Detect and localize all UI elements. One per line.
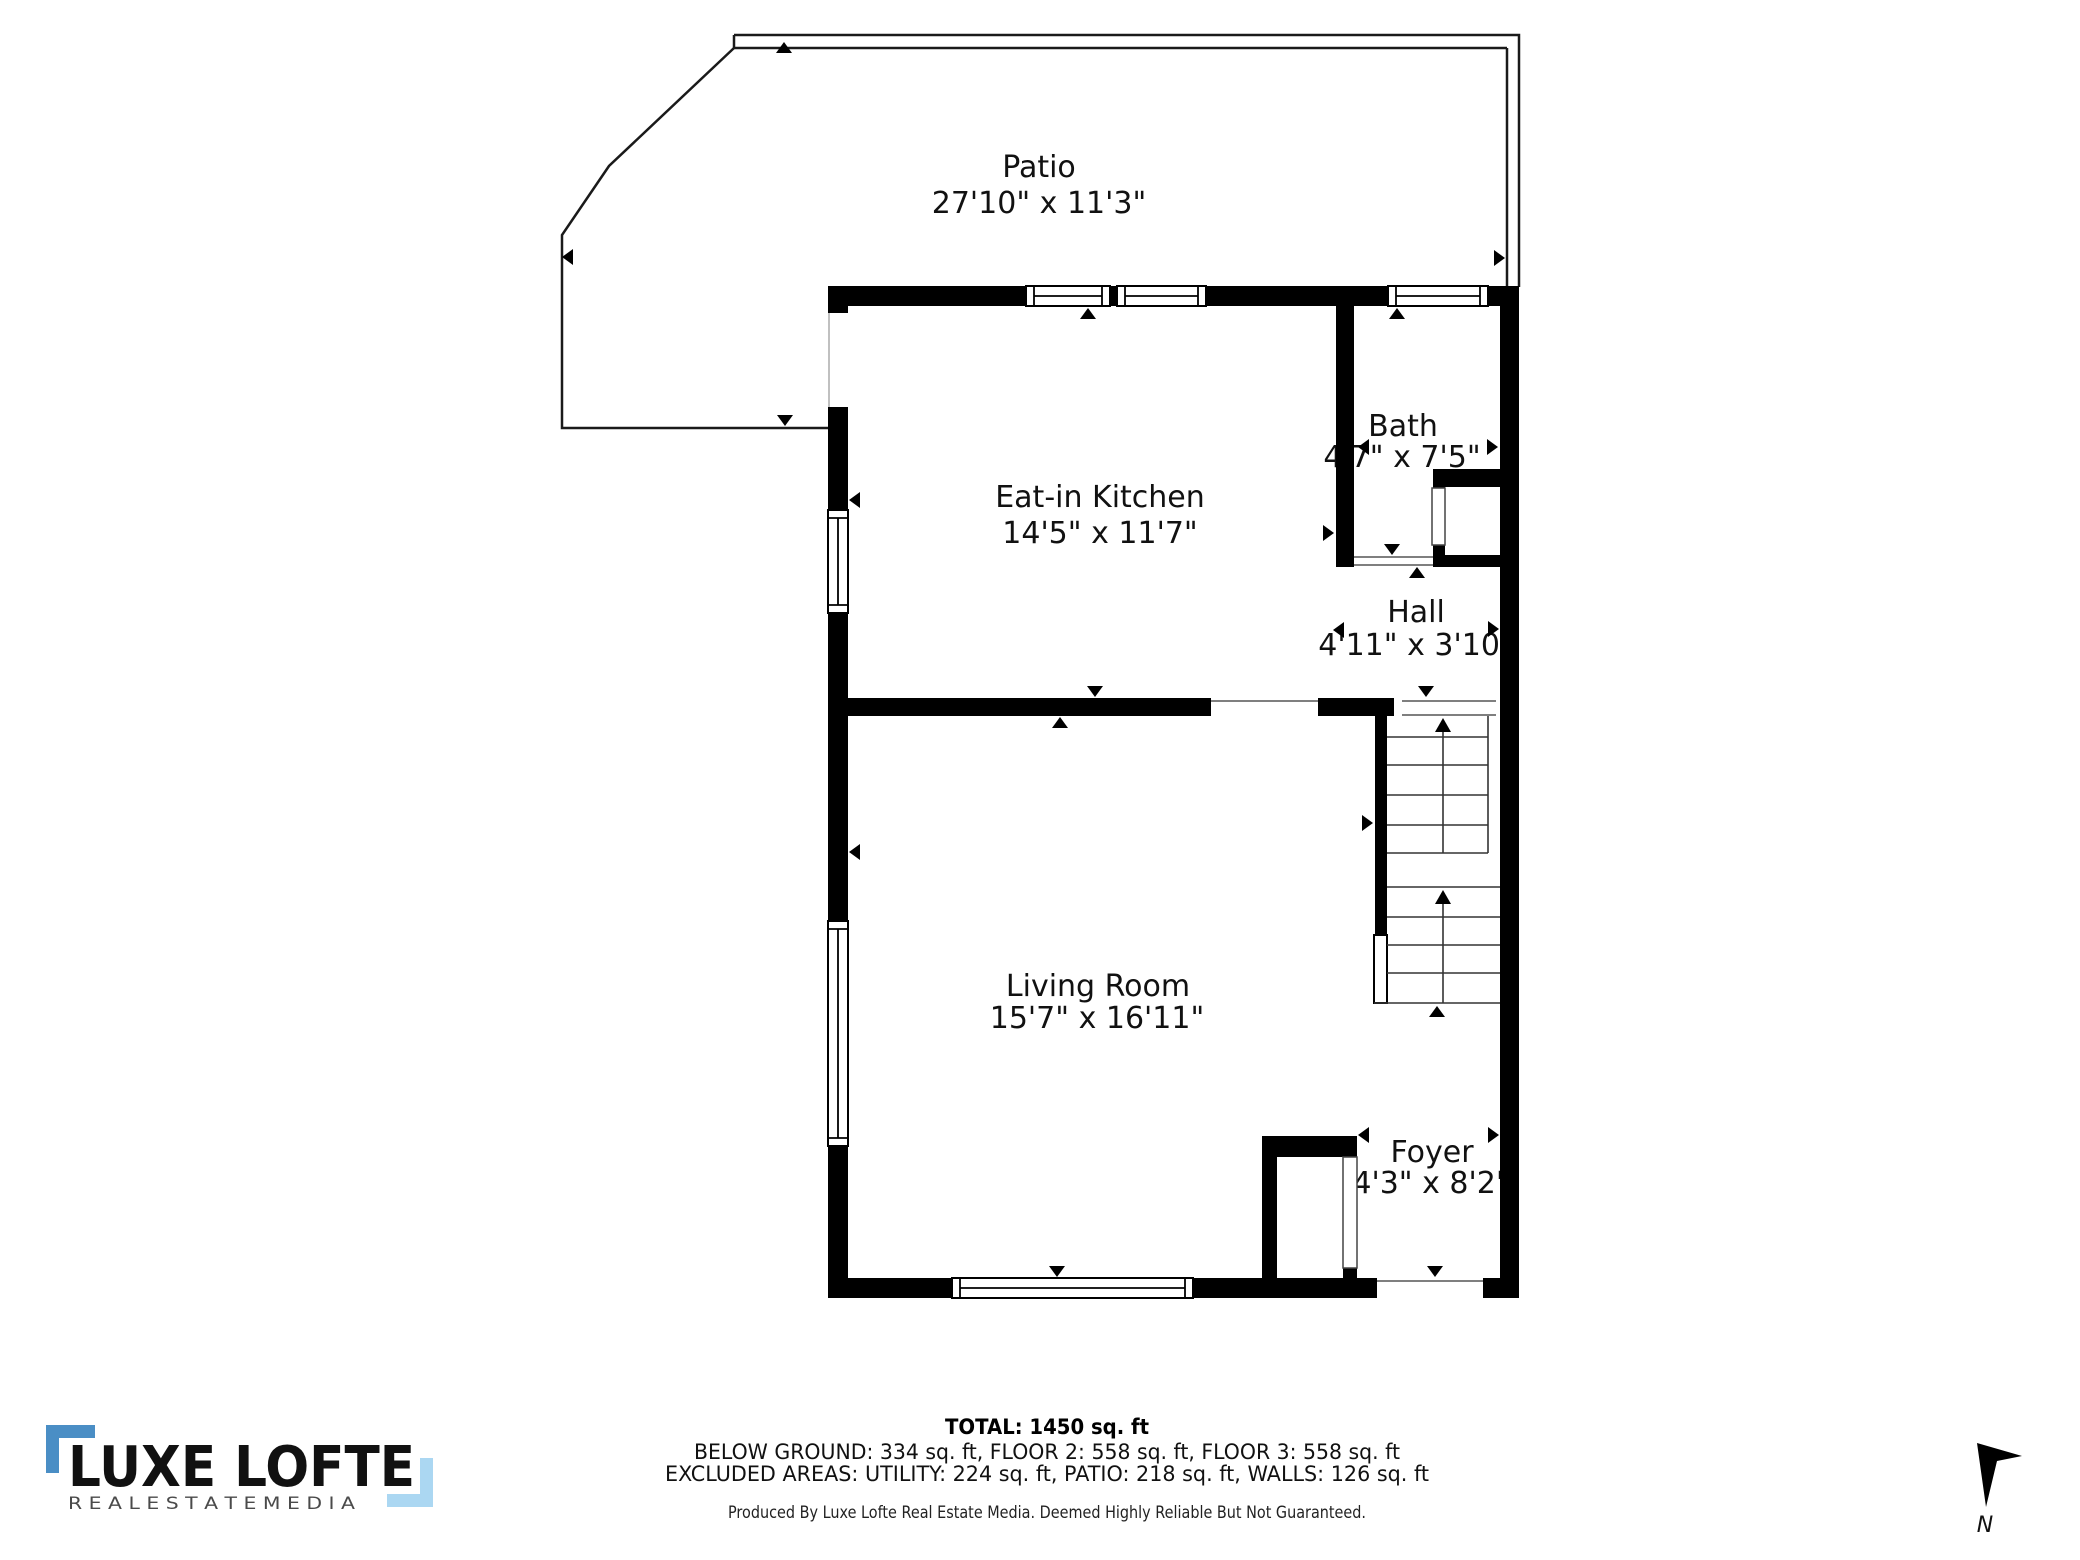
logo-tagline-text: R E A L E S T A T E M E D I A bbox=[68, 1494, 355, 1514]
foyer-name: Foyer bbox=[1390, 1135, 1474, 1170]
room-label-patio: Patio 27'10" x 11'3" bbox=[932, 150, 1147, 221]
window bbox=[1388, 286, 1488, 306]
floor-areas-text: BELOW GROUND: 334 sq. ft, FLOOR 2: 558 s… bbox=[694, 1440, 1400, 1464]
living-dims: 15'7" x 16'11" bbox=[990, 1001, 1205, 1036]
patio-outline bbox=[562, 35, 1519, 428]
window bbox=[1117, 286, 1206, 306]
total-area-text: TOTAL: 1450 sq. ft bbox=[945, 1415, 1149, 1439]
kitchen-dims: 14'5" x 11'7" bbox=[1002, 516, 1197, 551]
logo-bracket-light bbox=[420, 1458, 433, 1507]
compass: N bbox=[1977, 1443, 2022, 1538]
logo: LUXE LOFTE R E A L E S T A T E M E D I A bbox=[46, 1425, 433, 1514]
living-name: Living Room bbox=[1006, 969, 1190, 1004]
window bbox=[828, 921, 848, 1146]
stair-entry-marker bbox=[1429, 1006, 1445, 1017]
window bbox=[1026, 286, 1110, 306]
stair-up-arrow bbox=[1435, 890, 1451, 904]
logo-bracket-dark bbox=[46, 1425, 59, 1473]
footer-summary: TOTAL: 1450 sq. ft BELOW GROUND: 334 sq.… bbox=[665, 1415, 1429, 1523]
north-arrow-icon bbox=[1977, 1443, 2022, 1507]
floor-plan-canvas: Patio 27'10" x 11'3" Eat-in Kitchen 14'5… bbox=[0, 0, 2080, 1560]
bath-nook-door bbox=[1432, 488, 1445, 545]
hall-name: Hall bbox=[1387, 595, 1445, 630]
foyer-dims: 4'3" x 8'2" bbox=[1352, 1166, 1509, 1201]
stair-half-wall bbox=[1374, 935, 1387, 1003]
excluded-areas-text: EXCLUDED AREAS: UTILITY: 224 sq. ft, PAT… bbox=[665, 1462, 1429, 1486]
room-label-living: Living Room 15'7" x 16'11" bbox=[990, 969, 1205, 1036]
bath-name: Bath bbox=[1368, 409, 1438, 444]
logo-brand-text: LUXE LOFTE bbox=[68, 1435, 415, 1500]
disclaimer-text: Produced By Luxe Lofte Real Estate Media… bbox=[728, 1503, 1366, 1523]
floor-plan-page: Patio 27'10" x 11'3" Eat-in Kitchen 14'5… bbox=[0, 0, 2080, 1560]
room-label-foyer: Foyer 4'3" x 8'2" bbox=[1352, 1135, 1509, 1201]
patio-name: Patio bbox=[1002, 150, 1076, 185]
room-label-hall: Hall 4'11" x 3'10" bbox=[1318, 595, 1513, 663]
room-label-kitchen: Eat-in Kitchen 14'5" x 11'7" bbox=[995, 480, 1205, 551]
stair-up-arrow bbox=[1435, 718, 1451, 732]
window bbox=[828, 510, 848, 613]
hall-dims: 4'11" x 3'10" bbox=[1318, 628, 1513, 663]
window bbox=[952, 1278, 1193, 1298]
foyer-closet-door bbox=[1343, 1157, 1357, 1268]
north-label: N bbox=[1977, 1513, 1993, 1538]
patio-dims: 27'10" x 11'3" bbox=[932, 186, 1147, 221]
kitchen-name: Eat-in Kitchen bbox=[995, 480, 1205, 515]
stairs bbox=[1374, 716, 1500, 1017]
